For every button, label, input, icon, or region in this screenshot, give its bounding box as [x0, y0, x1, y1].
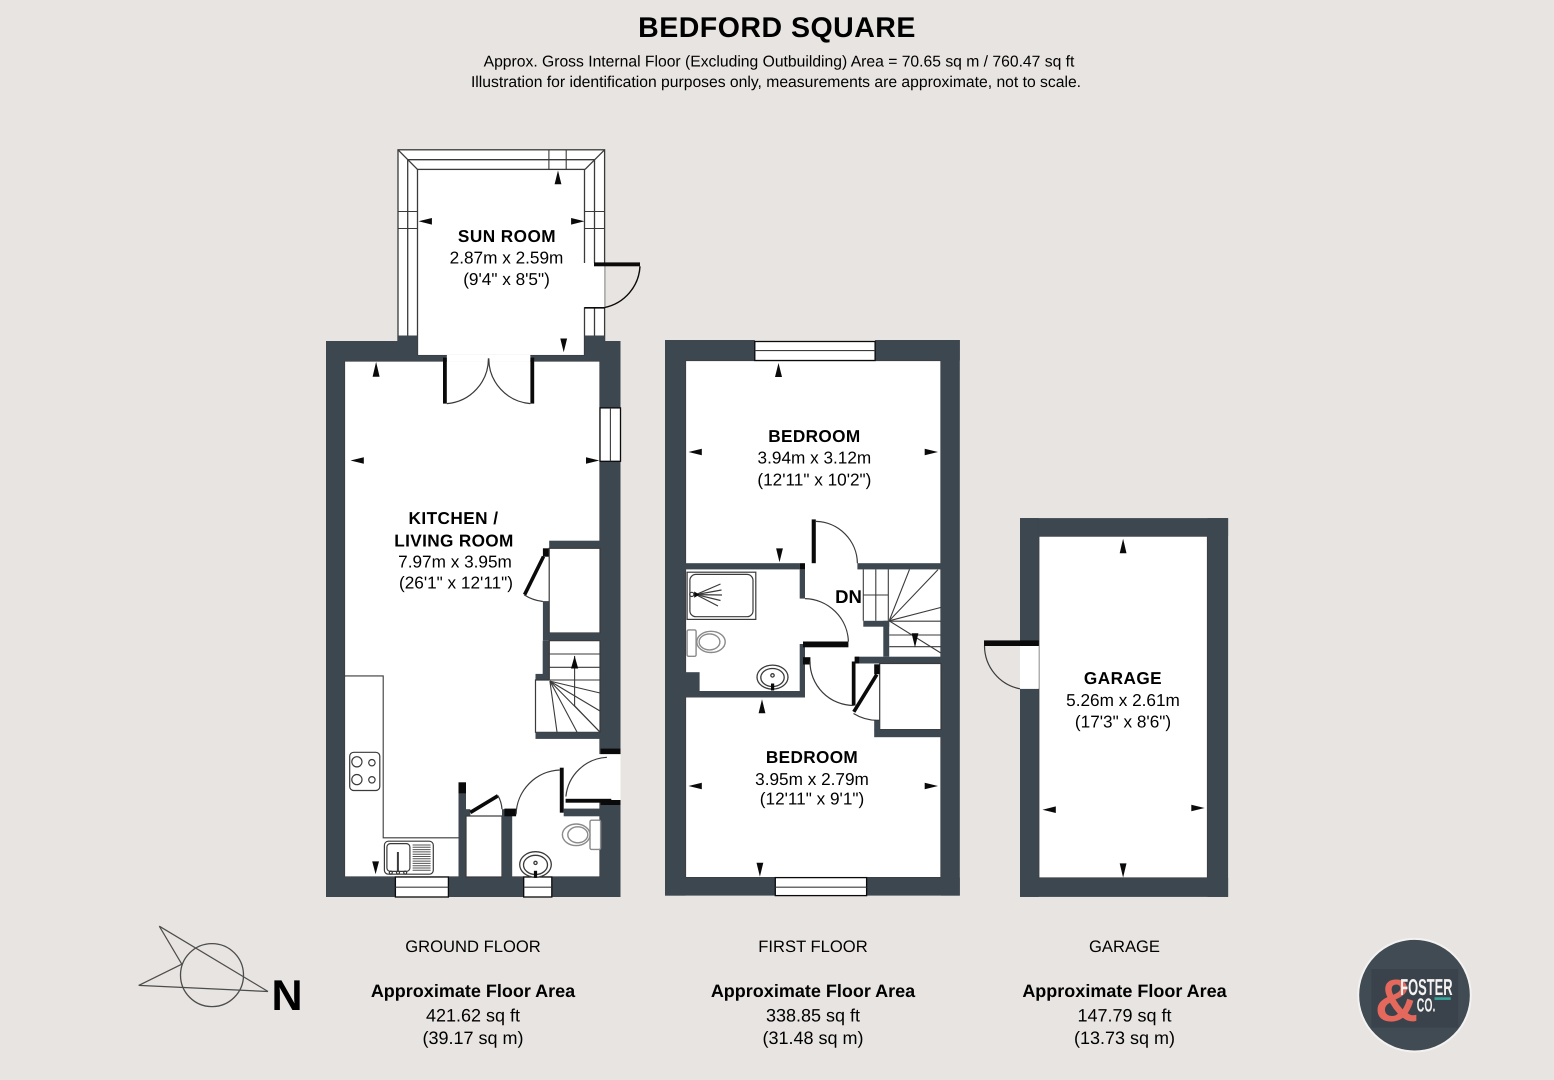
svg-text:(12'11" x 9'1"): (12'11" x 9'1") [760, 788, 864, 808]
svg-text:CO.: CO. [1417, 995, 1436, 1016]
svg-text:(31.48 sq m): (31.48 sq m) [762, 1028, 863, 1048]
svg-text:(39.17 sq m): (39.17 sq m) [422, 1028, 523, 1048]
svg-text:7.97m x 3.95m: 7.97m x 3.95m [398, 551, 512, 571]
svg-text:GARAGE: GARAGE [1089, 937, 1160, 956]
svg-text:GROUND FLOOR: GROUND FLOOR [405, 937, 541, 956]
svg-text:FIRST FLOOR: FIRST FLOOR [758, 937, 867, 956]
svg-text:Approx. Gross Internal Floor (: Approx. Gross Internal Floor (Excluding … [484, 54, 1075, 71]
svg-text:Approximate Floor Area: Approximate Floor Area [371, 981, 576, 1001]
svg-text:Approximate Floor Area: Approximate Floor Area [711, 981, 916, 1001]
svg-text:LIVING ROOM: LIVING ROOM [394, 530, 513, 550]
svg-text:Illustration for identificatio: Illustration for identification purposes… [471, 74, 1081, 91]
svg-text:N: N [271, 972, 302, 1020]
svg-text:147.79 sq ft: 147.79 sq ft [1077, 1005, 1171, 1025]
svg-text:338.85 sq ft: 338.85 sq ft [766, 1005, 860, 1025]
svg-text:(13.73 sq m): (13.73 sq m) [1074, 1028, 1175, 1048]
svg-text:KITCHEN /: KITCHEN / [409, 508, 499, 528]
svg-text:3.94m x 3.12m: 3.94m x 3.12m [758, 447, 872, 467]
svg-text:2.87m x 2.59m: 2.87m x 2.59m [450, 247, 564, 267]
svg-text:5.26m x 2.61m: 5.26m x 2.61m [1066, 690, 1180, 710]
svg-text:(26'1" x 12'11"): (26'1" x 12'11") [399, 573, 513, 593]
svg-text:421.62 sq ft: 421.62 sq ft [426, 1005, 520, 1025]
svg-text:(17'3" x 8'6"): (17'3" x 8'6") [1075, 712, 1171, 732]
svg-text:BEDROOM: BEDROOM [766, 747, 858, 767]
svg-text:GARAGE: GARAGE [1084, 668, 1162, 688]
svg-text:BEDFORD SQUARE: BEDFORD SQUARE [638, 12, 916, 44]
svg-text:(9'4" x 8'5"): (9'4" x 8'5") [463, 269, 550, 289]
svg-text:SUN ROOM: SUN ROOM [458, 226, 556, 246]
svg-text:BEDROOM: BEDROOM [768, 426, 860, 446]
svg-text:(12'11" x 10'2"): (12'11" x 10'2") [757, 470, 871, 490]
svg-text:Approximate Floor Area: Approximate Floor Area [1022, 981, 1227, 1001]
svg-text:DN: DN [835, 586, 862, 607]
svg-text:3.95m x 2.79m: 3.95m x 2.79m [755, 769, 869, 789]
